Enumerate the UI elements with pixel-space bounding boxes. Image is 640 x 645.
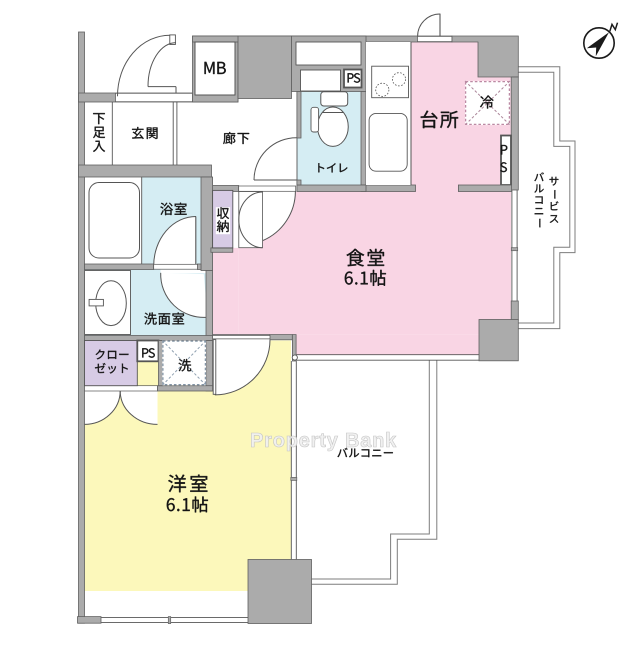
svg-text:Property Bank: Property Bank — [250, 430, 397, 452]
